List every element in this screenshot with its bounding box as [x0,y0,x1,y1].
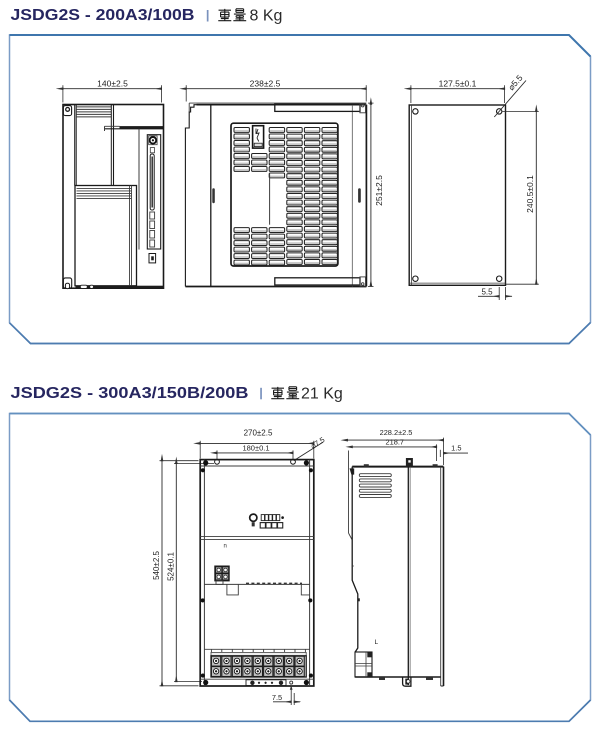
svg-text:180±0.1: 180±0.1 [242,443,269,452]
svg-text:251±2.5: 251±2.5 [374,175,384,206]
svg-text:238±2.5: 238±2.5 [250,79,281,89]
svg-text:21 Kg: 21 Kg [301,386,343,403]
svg-text:8 Kg: 8 Kg [250,8,283,25]
svg-text:240.5±0.1: 240.5±0.1 [525,175,535,213]
svg-text:270±2.5: 270±2.5 [244,429,273,438]
svg-text:JSDG2S - 300A3/150B/200B: JSDG2S - 300A3/150B/200B [11,385,249,402]
svg-text:218.7: 218.7 [386,438,405,447]
svg-text:127.5±0.1: 127.5±0.1 [439,79,477,89]
svg-text:7.5: 7.5 [272,693,282,702]
svg-text:1.5: 1.5 [451,444,461,453]
svg-text:140±2.5: 140±2.5 [97,79,128,89]
svg-text:5.5: 5.5 [481,287,493,296]
svg-text:540±2.5: 540±2.5 [152,551,161,580]
svg-text:n: n [224,544,227,550]
svg-text:L: L [375,639,379,646]
svg-text:JSDG2S - 200A3/100B: JSDG2S - 200A3/100B [11,7,195,24]
svg-text:228.2±2.5: 228.2±2.5 [380,428,413,437]
svg-text:524±0.1: 524±0.1 [166,552,175,581]
